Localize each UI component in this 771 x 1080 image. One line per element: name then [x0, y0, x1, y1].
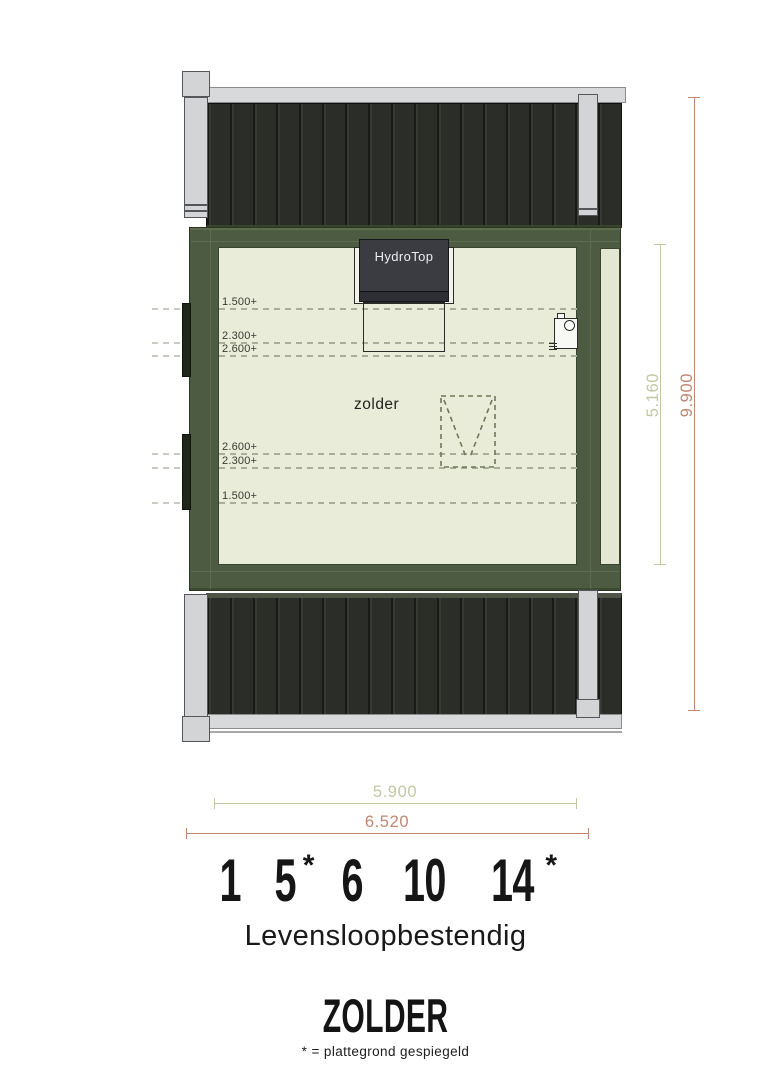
vent-unit-notch	[557, 313, 565, 319]
contour-line-3	[219, 355, 577, 357]
dim-label-inner-width: 5.900	[214, 783, 576, 802]
left-wall-window-upper	[182, 303, 191, 377]
dim-tick	[576, 798, 577, 809]
roof-window-dashed	[438, 393, 498, 471]
hydrotop-unit: HydroTop	[359, 239, 449, 302]
wall-highlight-left	[210, 229, 211, 589]
room-label: zolder	[354, 396, 399, 414]
concept-subtitle: Levensloopbestendig	[0, 920, 771, 953]
house-numbers: 1 5* 6 10 14*	[0, 857, 771, 905]
ridge-post-top-right-base	[578, 209, 598, 216]
dim-label-total-depth: 9.900	[678, 373, 697, 417]
contour-line-6	[219, 502, 577, 504]
chimney-top-left-cap	[182, 71, 210, 97]
height-marker-label: 2.600+	[222, 343, 257, 355]
contour-line-out-1	[152, 308, 183, 310]
wall-highlight-south	[191, 571, 619, 572]
contour-line-5	[219, 467, 577, 469]
page-title: ZOLDER	[139, 997, 632, 1035]
dim-label-outer-width: 6.520	[186, 813, 588, 832]
contour-line-out-2	[152, 342, 183, 344]
house-number: 14*	[480, 857, 557, 905]
height-marker-label: 1.500+	[222, 296, 257, 308]
hydrotop-label: HydroTop	[360, 249, 448, 264]
dim-tick	[688, 97, 700, 98]
height-marker-label: 1.500+	[222, 490, 257, 502]
vent-unit-grille-icon	[549, 343, 557, 350]
house-number: 6	[336, 857, 369, 905]
bottom-roof-panels	[206, 593, 622, 715]
bottom-eave-line	[206, 731, 622, 733]
dim-tick	[588, 828, 589, 839]
contour-line-out-3	[152, 355, 183, 357]
ridge-post-bottom-right	[578, 590, 598, 702]
house-number-value: 14	[491, 857, 534, 905]
mirrored-star-icon: *	[545, 853, 557, 879]
mirrored-footnote: * = plattegrond gespiegeld	[0, 1044, 771, 1059]
wall-highlight-right	[590, 229, 591, 589]
left-wall-window-lower	[182, 434, 191, 510]
mirrored-star-icon: *	[303, 853, 315, 879]
bottom-eave-strip	[206, 714, 622, 729]
vent-unit-fan-icon	[564, 320, 575, 331]
contour-line-4	[219, 453, 577, 455]
dim-line-inner-width	[214, 803, 576, 804]
height-marker-label: 2.300+	[222, 330, 257, 342]
house-number-value: 1	[220, 857, 241, 905]
chimney-top-left-foot	[184, 211, 208, 218]
hydrotop-bottom-strip	[360, 291, 448, 301]
dim-tick	[688, 710, 700, 711]
dim-tick	[654, 244, 666, 245]
height-marker-label: 2.600+	[222, 441, 257, 453]
right-overhang-strip	[600, 248, 620, 565]
house-number: 10	[392, 857, 458, 905]
contour-line-out-4	[152, 453, 183, 455]
dim-line-outer-width	[186, 833, 588, 834]
house-number-value: 6	[342, 857, 363, 905]
top-eave-strip	[206, 87, 626, 103]
ridge-post-top-right	[578, 94, 598, 209]
contour-line-out-6	[152, 502, 183, 504]
dim-tick	[186, 828, 187, 839]
house-number-value: 10	[403, 857, 446, 905]
dim-tick	[214, 798, 215, 809]
dim-tick	[654, 564, 666, 565]
chimney-top-left	[184, 97, 208, 205]
house-number-value: 5	[275, 857, 296, 905]
chimney-bottom-left-cap	[182, 716, 210, 742]
floorplan-page: 1.500+ 2.300+ 2.600+ 2.600+ 2.300+ 1.500…	[0, 0, 771, 1080]
house-number: 1	[214, 857, 247, 905]
height-marker-label: 2.300+	[222, 455, 257, 467]
ridge-post-bottom-right-cap	[576, 699, 600, 718]
hydrotop-duct	[363, 302, 445, 352]
top-roof-panels	[206, 103, 622, 228]
chimney-bottom-left	[184, 594, 208, 718]
house-number: 5*	[269, 857, 314, 905]
contour-line-out-5	[152, 467, 183, 469]
dim-label-inner-depth: 5.160	[644, 373, 663, 417]
